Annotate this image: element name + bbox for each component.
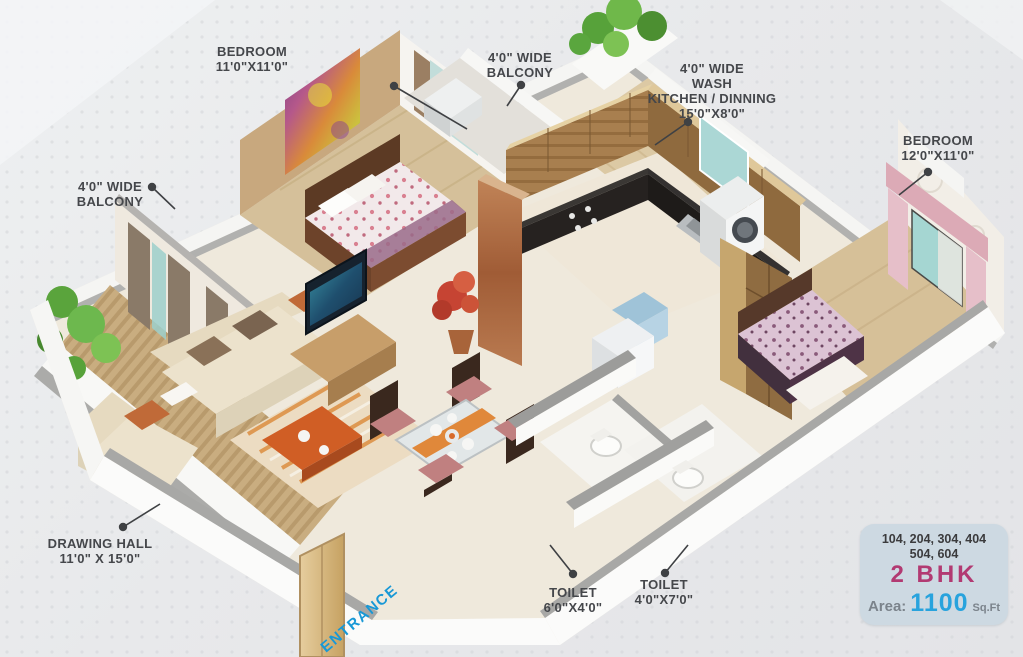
plant: [91, 333, 121, 363]
stove-burner: [575, 225, 581, 231]
red-plant: [461, 295, 479, 313]
toilet1-name: TOILET: [544, 585, 603, 600]
area-unit: Sq.Ft: [973, 602, 1001, 614]
unit-info-card: 104, 204, 304, 404 504, 604 2 BHK Area: …: [860, 524, 1008, 625]
label-balcony-top: 4'0" WIDE BALCONY: [487, 50, 553, 80]
bedroom2-size: 12'0"X11'0": [901, 148, 974, 163]
toilet2-size: 4'0"X7'0": [635, 592, 694, 607]
balcony-left-line1: 4'0" WIDE: [77, 179, 143, 194]
bedroom2-name: BEDROOM: [901, 133, 974, 148]
area-row: Area: 1100 Sq.Ft: [868, 589, 1000, 618]
plate: [447, 413, 457, 423]
label-bedroom1: BEDROOM 11'0"X11'0": [216, 44, 288, 74]
balcony-left-line2: BALCONY: [77, 194, 143, 209]
label-toilet2: TOILET 4'0"X7'0": [635, 577, 694, 607]
unit-type: 2 BHK: [890, 562, 977, 588]
label-toilet1: TOILET 6'0"X4'0": [544, 585, 603, 615]
drawing-hall-size: 11'0" X 15'0": [48, 551, 153, 566]
stove-burner: [591, 218, 597, 224]
curtain-left: [888, 188, 908, 290]
kitchen-line3: KITCHEN / DINNING: [648, 91, 777, 106]
toilet2-name: TOILET: [635, 577, 694, 592]
plant: [569, 33, 591, 55]
kitchen-line2: WASH: [648, 76, 777, 91]
marble-pillar: [478, 180, 522, 366]
red-plant: [453, 271, 475, 293]
hall-curtain: [128, 222, 150, 330]
plate: [462, 438, 474, 450]
kitchen-line4: 15'0"X8'0": [648, 106, 777, 121]
stove-burner: [585, 206, 591, 212]
red-plant: [432, 300, 452, 320]
kitchen-line1: 4'0" WIDE: [648, 61, 777, 76]
unit-numbers-line1: 104, 204, 304, 404: [882, 532, 986, 546]
label-drawing-hall: DRAWING HALL 11'0" X 15'0": [48, 536, 153, 566]
plate: [319, 445, 329, 455]
area-label: Area:: [868, 598, 906, 615]
stove-burner: [569, 213, 575, 219]
bedroom1-size: 11'0"X11'0": [216, 59, 288, 74]
plant: [637, 11, 667, 41]
fruit: [449, 433, 455, 439]
drawing-hall-name: DRAWING HALL: [48, 536, 153, 551]
label-balcony-left: 4'0" WIDE BALCONY: [77, 179, 143, 209]
plate: [298, 430, 310, 442]
label-bedroom2: BEDROOM 12'0"X11'0": [901, 133, 974, 163]
balcony-top-line2: BALCONY: [487, 65, 553, 80]
floor-plan-poster: BEDROOM 11'0"X11'0" 4'0" WIDE BALCONY 4'…: [0, 0, 1023, 657]
toilet1-size: 6'0"X4'0": [544, 600, 603, 615]
wall-art-blob: [331, 121, 349, 139]
balcony-top-line1: 4'0" WIDE: [487, 50, 553, 65]
label-kitchen: 4'0" WIDE WASH KITCHEN / DINNING 15'0"X8…: [648, 61, 777, 121]
hall-window: [152, 242, 166, 340]
bedroom1-name: BEDROOM: [216, 44, 288, 59]
plate: [430, 424, 442, 436]
plant: [603, 31, 629, 57]
wall-art-blob: [308, 83, 332, 107]
area-value: 1100: [910, 589, 968, 618]
washing-machine-door-glass: [737, 222, 753, 238]
unit-numbers-line2: 504, 604: [910, 547, 959, 561]
